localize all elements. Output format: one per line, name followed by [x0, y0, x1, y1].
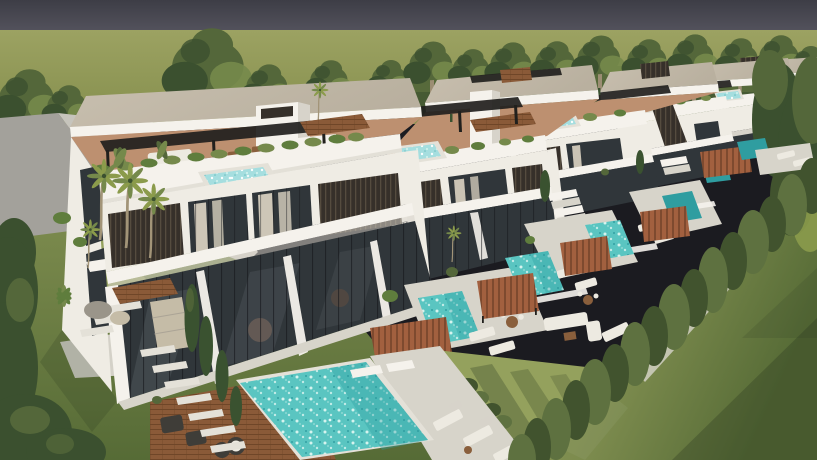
dusk-sky — [0, 0, 817, 34]
terracotta-pergola — [560, 236, 612, 276]
villa-complex-scene — [0, 0, 817, 460]
garden-rock — [84, 301, 112, 319]
terracotta-pergola — [477, 273, 539, 319]
architectural-render — [0, 0, 817, 460]
agave-plant — [55, 285, 72, 307]
terracotta-pergola — [640, 206, 690, 242]
shrub — [53, 212, 71, 224]
garden-boulder — [110, 311, 130, 325]
